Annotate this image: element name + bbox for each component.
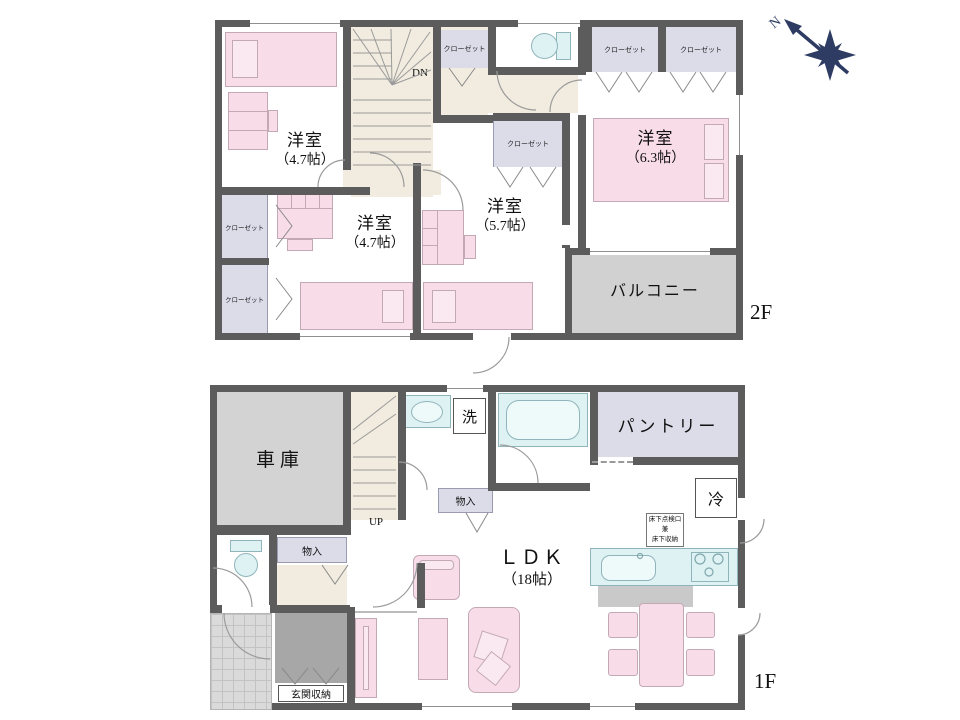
entrance-porch-tile xyxy=(210,613,272,710)
entry-step-line xyxy=(350,611,417,613)
storage-hall: 物入 xyxy=(438,488,493,513)
closet-west-2: クローゼット xyxy=(222,265,268,333)
window xyxy=(736,95,743,155)
laundry-box: 洗 xyxy=(453,398,486,434)
room-size: （4.7帖） xyxy=(230,152,380,170)
floor-2f-plan: クローゼット クローゼット クローゼット クローゼット クローゼット クローゼッ… xyxy=(215,20,743,340)
closet-ne-2: クローゼット xyxy=(666,27,736,72)
closet-label: クローゼット xyxy=(225,222,264,232)
wall-room-nw-south xyxy=(222,187,370,195)
wall-garage-right xyxy=(343,385,351,533)
storage-entrance-side: 物入 xyxy=(277,537,347,563)
fridge-label: 冷 xyxy=(708,486,724,510)
underfloor-storage-box: 床下点検口 兼 床下収納 xyxy=(646,513,684,547)
compass-north-label: N xyxy=(767,14,784,32)
storage-label: 物入 xyxy=(456,493,476,508)
room-size: （4.7帖） xyxy=(300,235,450,253)
window xyxy=(447,385,483,392)
room-name: 洋室 xyxy=(230,130,380,152)
washbasin xyxy=(403,395,451,428)
wall-room-center-north xyxy=(433,115,493,123)
dining-chair xyxy=(608,649,638,676)
pantry: パントリー xyxy=(598,392,738,457)
pillow xyxy=(382,290,404,323)
room-label-center: 洋室 （5.7帖） xyxy=(430,196,580,236)
balcony-label: バルコニー xyxy=(580,282,730,303)
wall-stair-right xyxy=(398,385,406,520)
closet-label: クローゼット xyxy=(225,294,264,304)
dining-table xyxy=(639,603,684,687)
toilet-bowl-1f xyxy=(234,553,258,577)
underfloor-line: 兼 xyxy=(662,525,669,535)
closet-center: クローゼット xyxy=(493,121,562,167)
toilet-tank-1f xyxy=(230,540,262,552)
pantry-open-boundary xyxy=(592,461,633,463)
desk-divider xyxy=(319,194,320,208)
room-label-sw: 洋室 （4.7帖） xyxy=(300,213,450,253)
window xyxy=(590,703,635,710)
pillow xyxy=(232,40,258,78)
floor-1f-plan: 車庫 パントリー 物入 物入 冷 床下点検口 兼 床下収納 xyxy=(210,385,745,710)
bed-sw xyxy=(300,282,413,330)
room-size: （6.3帖） xyxy=(583,150,728,168)
underfloor-line: 床下収納 xyxy=(652,535,678,545)
wall xyxy=(738,385,745,710)
window xyxy=(300,333,410,340)
wall-garage-bottom xyxy=(217,525,351,535)
underfloor-line: 床下点検口 xyxy=(649,515,682,525)
floorplan-canvas: クローゼット クローゼット クローゼット クローゼット クローゼット クローゼッ… xyxy=(0,0,960,720)
wall-pantry-left xyxy=(590,385,598,465)
window xyxy=(250,20,340,27)
closet-label: クローゼット xyxy=(680,45,722,55)
wall-entry-east xyxy=(417,563,425,608)
wall-room-east-nw xyxy=(578,20,592,72)
window xyxy=(518,20,580,27)
closet-west-1: クローゼット xyxy=(222,195,268,258)
garage: 車庫 xyxy=(217,392,343,525)
dining-chair xyxy=(686,612,715,638)
desk-shelf-line xyxy=(229,111,267,112)
bathtub xyxy=(498,393,588,447)
kitchen-counter xyxy=(590,548,738,586)
room-name: 洋室 xyxy=(300,213,450,235)
desk-divider xyxy=(291,194,292,208)
wall-closet-ne-divider xyxy=(658,27,666,72)
dining-chair xyxy=(686,649,715,676)
closet-label: クローゼット xyxy=(444,44,486,54)
room-size: （5.7帖） xyxy=(430,218,580,236)
desk-divider xyxy=(305,194,306,208)
pantry-label: パントリー xyxy=(618,412,719,437)
wall-closet-center-top xyxy=(493,113,562,121)
wall xyxy=(215,20,222,340)
door-opening xyxy=(738,498,745,520)
room-name: 洋室 xyxy=(583,128,728,150)
wall-bath-bottom xyxy=(488,483,590,491)
chair-center xyxy=(464,235,476,259)
wall xyxy=(210,385,217,613)
ldk-size: （18帖） xyxy=(472,571,592,591)
chair-nw xyxy=(268,110,278,132)
tv xyxy=(363,626,369,690)
window xyxy=(422,703,512,710)
room-name: 洋室 xyxy=(430,196,580,218)
door-opening xyxy=(738,608,745,635)
ldk-name: ＬＤＫ xyxy=(472,545,592,571)
laundry-label: 洗 xyxy=(462,406,477,427)
hallway-2f-b xyxy=(488,75,578,113)
pillow xyxy=(432,290,456,323)
compass-icon: N xyxy=(767,14,856,81)
wall-bath-left xyxy=(488,385,496,488)
stairs-1f xyxy=(351,392,398,520)
closet-label: クローゼット xyxy=(604,45,646,55)
wall-balcony-left xyxy=(565,248,572,333)
floor-tag-2f: 2F xyxy=(750,300,772,325)
wall-closet-divider xyxy=(222,258,269,265)
entrance-storage-label-box: 玄関収納 xyxy=(278,685,344,702)
wall-wc-bottom xyxy=(488,67,586,75)
desk-shelf-line xyxy=(278,208,332,209)
balcony-door-opening xyxy=(473,333,511,340)
closet-hall-2f: クローゼット xyxy=(441,30,488,68)
room-label-nw: 洋室 （4.7帖） xyxy=(230,130,380,170)
toilet-bowl-2f xyxy=(531,33,558,59)
kitchen-sink xyxy=(601,555,656,581)
side-table xyxy=(418,618,448,680)
tv-board xyxy=(355,618,377,698)
entrance-storage-label: 玄関収納 xyxy=(291,686,331,701)
floor-tag-1f: 1F xyxy=(754,669,776,694)
window-balcony xyxy=(590,248,710,255)
closet-ne-1: クローゼット xyxy=(592,27,658,72)
stairs-up-label: UP xyxy=(359,515,393,529)
wall xyxy=(736,20,743,340)
hallway-1f xyxy=(277,565,347,607)
stove xyxy=(691,552,729,582)
bed-nw xyxy=(225,32,337,87)
closet-label: クローゼット xyxy=(507,139,549,149)
bathtub-inner xyxy=(506,400,580,440)
ldk-label: ＬＤＫ （18帖） xyxy=(472,545,592,591)
wall-wc-right xyxy=(269,533,277,613)
entrance-storage xyxy=(275,610,347,683)
stairs-dn-label: DN xyxy=(403,66,437,80)
dining-chair xyxy=(608,612,638,638)
sofa xyxy=(468,607,520,693)
wall-pantry-bottom xyxy=(633,457,738,465)
toilet-tank-2f xyxy=(556,32,571,60)
bed-center xyxy=(423,282,533,330)
room-label-east: 洋室 （6.3帖） xyxy=(583,128,728,168)
entrance-door-opening xyxy=(222,605,270,613)
fridge-box: 冷 xyxy=(695,478,737,518)
garage-label: 車庫 xyxy=(256,445,304,472)
pillow xyxy=(704,163,724,199)
wall-entry-right xyxy=(347,607,355,710)
washbasin-bowl xyxy=(411,401,443,423)
storage-label: 物入 xyxy=(302,543,322,558)
